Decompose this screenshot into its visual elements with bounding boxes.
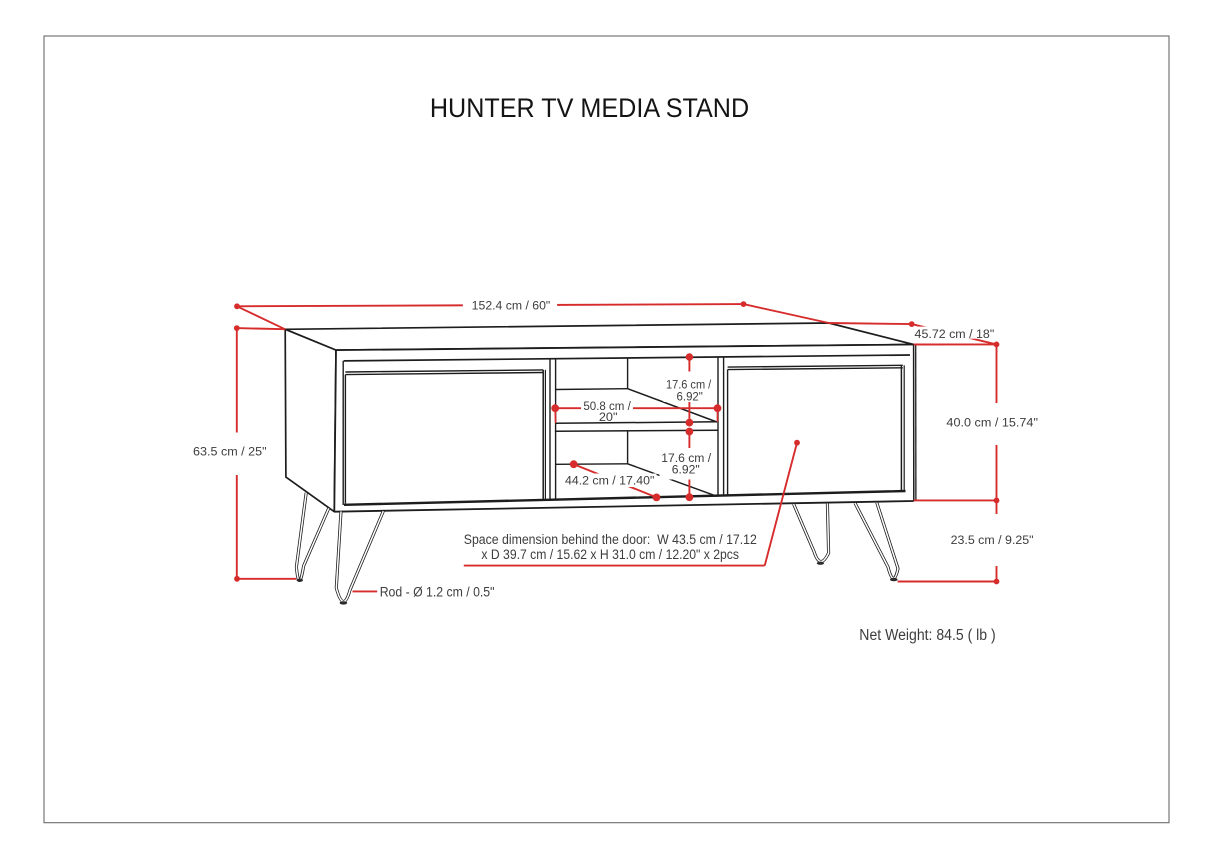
svg-text:HUNTER TV MEDIA STAND: HUNTER TV MEDIA STAND (430, 93, 749, 123)
svg-text:20": 20" (599, 410, 618, 424)
svg-text:Net Weight: 84.5 ( lb ): Net Weight: 84.5 ( lb ) (859, 627, 995, 644)
svg-text:44.2 cm / 17.40": 44.2 cm / 17.40" (565, 474, 654, 488)
svg-text:Space dimension behind the doo: Space dimension behind the door: W 43.5 … (464, 532, 757, 547)
svg-text:23.5 cm / 9.25": 23.5 cm / 9.25" (951, 533, 1034, 547)
svg-text:Rod - Ø 1.2 cm / 0.5": Rod - Ø 1.2 cm / 0.5" (380, 585, 495, 600)
svg-text:40.0 cm / 15.74": 40.0 cm / 15.74" (946, 415, 1038, 429)
svg-text:x D 39.7 cm / 15.62 x H 31.0 c: x D 39.7 cm / 15.62 x H 31.0 cm / 12.20"… (481, 547, 739, 562)
svg-text:152.4 cm / 60": 152.4 cm / 60" (472, 299, 551, 313)
svg-text:6.92": 6.92" (677, 390, 703, 404)
svg-text:6.92": 6.92" (672, 463, 700, 477)
svg-text:45.72 cm / 18": 45.72 cm / 18" (915, 327, 995, 341)
svg-text:63.5 cm / 25": 63.5 cm / 25" (193, 445, 267, 459)
